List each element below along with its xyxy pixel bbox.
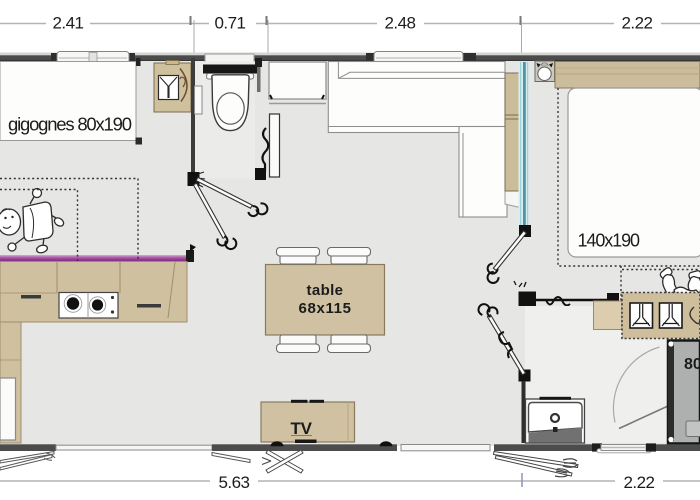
svg-text:2.48: 2.48 [385,14,417,33]
svg-text:2.22: 2.22 [624,473,656,492]
svg-text:2.41: 2.41 [53,14,85,33]
svg-text:gigognes 80x190: gigognes 80x190 [8,114,132,135]
svg-text:5.63: 5.63 [219,473,251,492]
svg-text:140x190: 140x190 [578,231,641,251]
svg-text:table: table [307,282,344,299]
svg-text:TV: TV [291,419,313,438]
svg-text:68x115: 68x115 [299,300,352,317]
svg-text:2.22: 2.22 [622,14,654,33]
svg-text:0.71: 0.71 [215,14,247,33]
svg-text:80x: 80x [684,356,700,373]
